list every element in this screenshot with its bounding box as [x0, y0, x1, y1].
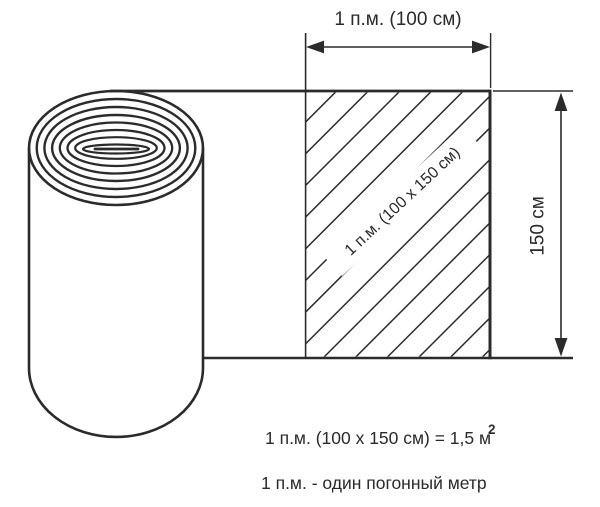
fabric-roll-drawing — [29, 91, 203, 437]
arrow-head-right — [472, 41, 490, 54]
height-dimension-label: 150 см — [528, 196, 549, 256]
formula-text: 1 п.м. (100 х 150 см) = 1,5 м — [265, 428, 491, 448]
diagram-page: 1 п.м. (100 х 150 см) 1 п.м. (100 см) 15… — [0, 0, 600, 507]
unrolled-sheet — [110, 33, 573, 359]
definition-text: 1 п.м. - один погонный метр — [261, 473, 487, 493]
arrow-head-left — [306, 41, 324, 54]
notes: 1 п.м. (100 х 150 см) = 1,5 м 2 1 п.м. -… — [261, 422, 496, 493]
height-dimension: 150 см — [493, 91, 573, 357]
formula-superscript: 2 — [488, 422, 496, 437]
width-dimension: 1 п.м. (100 см) — [306, 9, 491, 88]
linear-meter-diagram: 1 п.м. (100 х 150 см) 1 п.м. (100 см) 15… — [0, 0, 600, 507]
roll-body — [29, 148, 203, 437]
width-dimension-label: 1 п.м. (100 см) — [334, 9, 461, 30]
arrow-head-up — [555, 93, 568, 112]
arrow-head-down — [555, 338, 568, 357]
